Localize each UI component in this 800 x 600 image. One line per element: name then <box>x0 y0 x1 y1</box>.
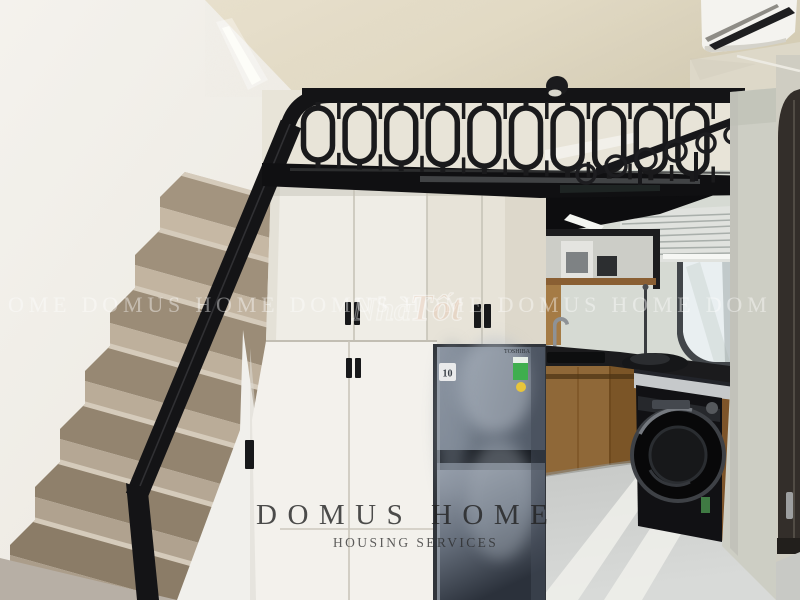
svg-text:Nhà: Nhà <box>351 292 411 328</box>
svg-text:HOUSING SERVICES: HOUSING SERVICES <box>333 535 498 550</box>
svg-text:TOSHIBA: TOSHIBA <box>504 349 531 355</box>
svg-text:DOMUS HOME: DOMUS HOME <box>256 499 558 531</box>
svg-text:Tốt: Tốt <box>410 288 463 329</box>
svg-text:10: 10 <box>443 369 453 380</box>
